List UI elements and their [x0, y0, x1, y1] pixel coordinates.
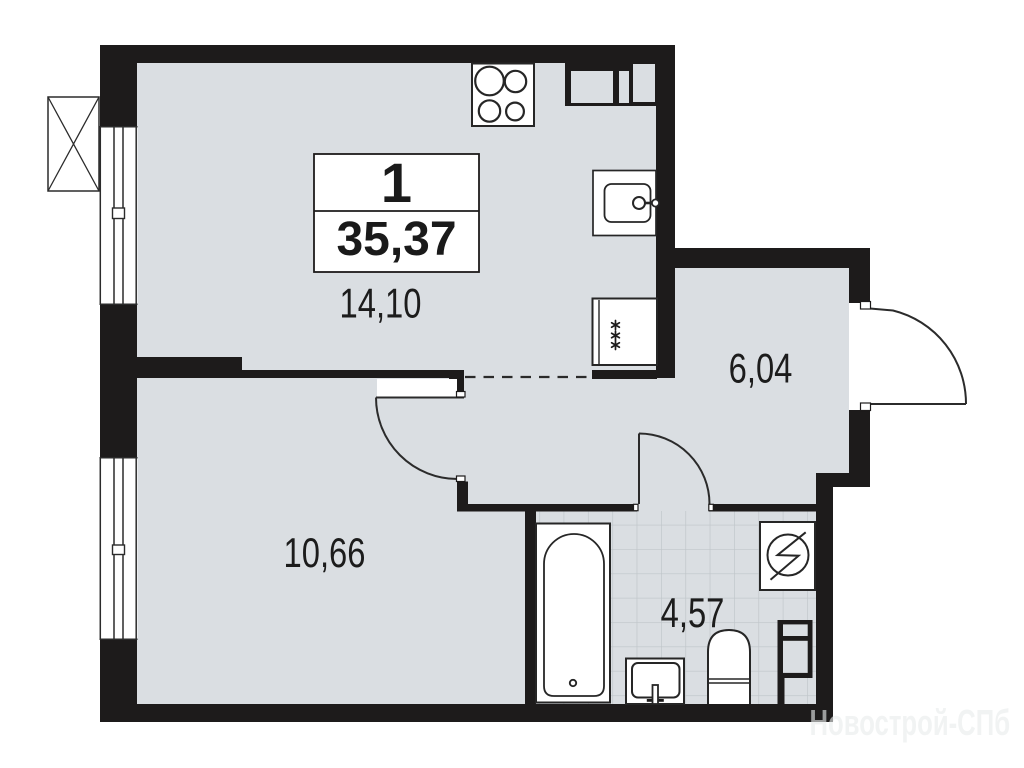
svg-text:4,57: 4,57	[661, 589, 725, 636]
svg-text:35,37: 35,37	[336, 213, 456, 266]
svg-text:10,66: 10,66	[284, 529, 366, 576]
svg-text:1: 1	[381, 151, 412, 214]
svg-text:6,04: 6,04	[729, 345, 793, 392]
svg-text:Новострой-СПб: Новострой-СПб	[810, 703, 1011, 743]
svg-text:14,10: 14,10	[340, 280, 422, 327]
